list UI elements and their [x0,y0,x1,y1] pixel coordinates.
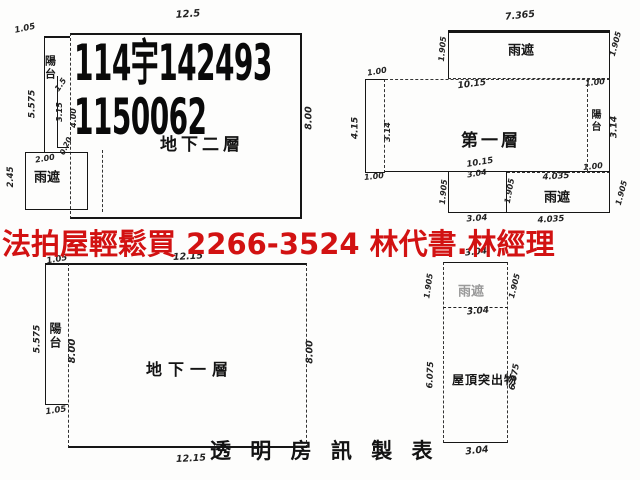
roof-canopy-label: 雨遮 [458,286,484,299]
b2-dim-strip-1: 3.15 [56,102,64,122]
roof-dim-left-height: 6.075 [426,361,435,388]
b1-dim-inner-height: 8.00 [68,339,78,364]
first-floor-bottom-left-outline [448,172,507,213]
roof-dim-bottom-width: 3.04 [465,445,489,457]
b1-dim-left-height: 5.575 [34,325,43,353]
b2-dim-right-height: 8.00 [304,106,314,129]
first-floor-label: 第一層 [461,126,521,151]
b2-dim-topleft: 1.05 [14,23,36,36]
f1-balcony-label: 陽台 [589,109,599,133]
f1-dim-sw: 1.00 [364,172,384,182]
f1-dim-west-inner: 3.14 [384,122,392,142]
basement2-floor-label: 地下二層 [160,130,244,155]
b2-dim-left-height: 5.575 [29,90,38,118]
b2-canopy-label: 雨遮 [34,172,60,185]
case-number-stamp-line1: 114宇142493 [74,38,272,88]
b1-dim-right-height: 8.00 [305,340,315,363]
b2-balcony-label: 陽台 [45,55,56,81]
f1-canopy-top-label: 雨遮 [508,45,534,58]
b1-dim-bottom-width: 12.15 [176,453,207,464]
b2-dim-canopy-height: 2.45 [7,167,16,188]
roof-dim-canopy-left: 1.905 [423,273,434,299]
f1-dim-east-height: 3.14 [611,116,620,138]
b1-balcony-label: 陽台 [49,322,61,350]
first-floor-left-protrusion [365,79,385,173]
f1-dim-west-height: 4.15 [352,117,361,139]
basement2-dashed-line [102,150,103,212]
b2-dim-top-width: 12.5 [175,9,200,21]
roof-dim-right-height: 6.075 [508,363,521,391]
f1-dim-canopy-left: 1.905 [438,36,448,62]
f1-bcanopy-label: 雨遮 [544,192,570,205]
f1-dim-top-width: 7.365 [505,10,536,23]
basement1-floor-label: 地下一層 [146,356,234,380]
f1-dim-nw: 1.00 [367,66,388,77]
b1-dim-balcony-bottom: 1.05 [45,405,67,416]
f1-dim-bcanopy-width: 4.035 [542,172,569,182]
f1-dim-canopy-right: 1.905 [609,31,623,58]
publisher-credit-text: 透 明 房 訊 製 表 [210,435,439,465]
red-ad-overlay-text: 法拍屋輕鬆買 2266-3524 林代書.林經理 [2,221,640,263]
f1-dim-bcanopy-right: 1.905 [615,180,629,207]
roof-dim-canopy-right: 1.905 [508,273,522,299]
roof-dim-mid-width: 3.04 [467,307,490,318]
floorplan-scan-page: 114宇142493 1150062 地下二層 第一層 地下一層 屋頂突出物 1… [0,0,640,480]
b2-dim-strip-2: 4.00 [70,108,78,128]
